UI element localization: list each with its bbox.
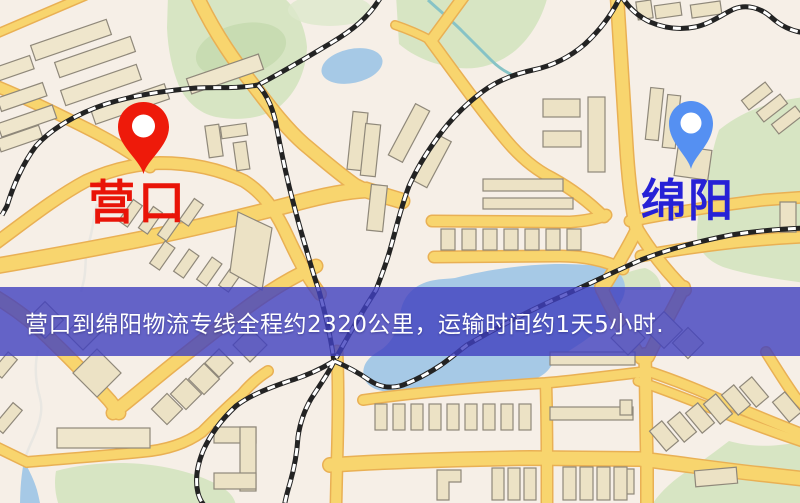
map-artwork — [0, 0, 800, 503]
origin-pin-icon — [117, 101, 170, 175]
banner-text: 营口到绵阳物流专线全程约2320公里，运输时间约1天5小时. — [25, 305, 664, 339]
destination-label: 绵阳 — [641, 178, 735, 223]
destination-pin-icon — [668, 100, 714, 170]
origin-label: 营口 — [88, 180, 188, 227]
info-banner: 营口到绵阳物流专线全程约2320公里，运输时间约1天5小时. — [0, 287, 800, 356]
map-canvas: 营口 绵阳 营口到绵阳物流专线全程约2320公里，运输时间约1天5小时. — [0, 0, 800, 503]
